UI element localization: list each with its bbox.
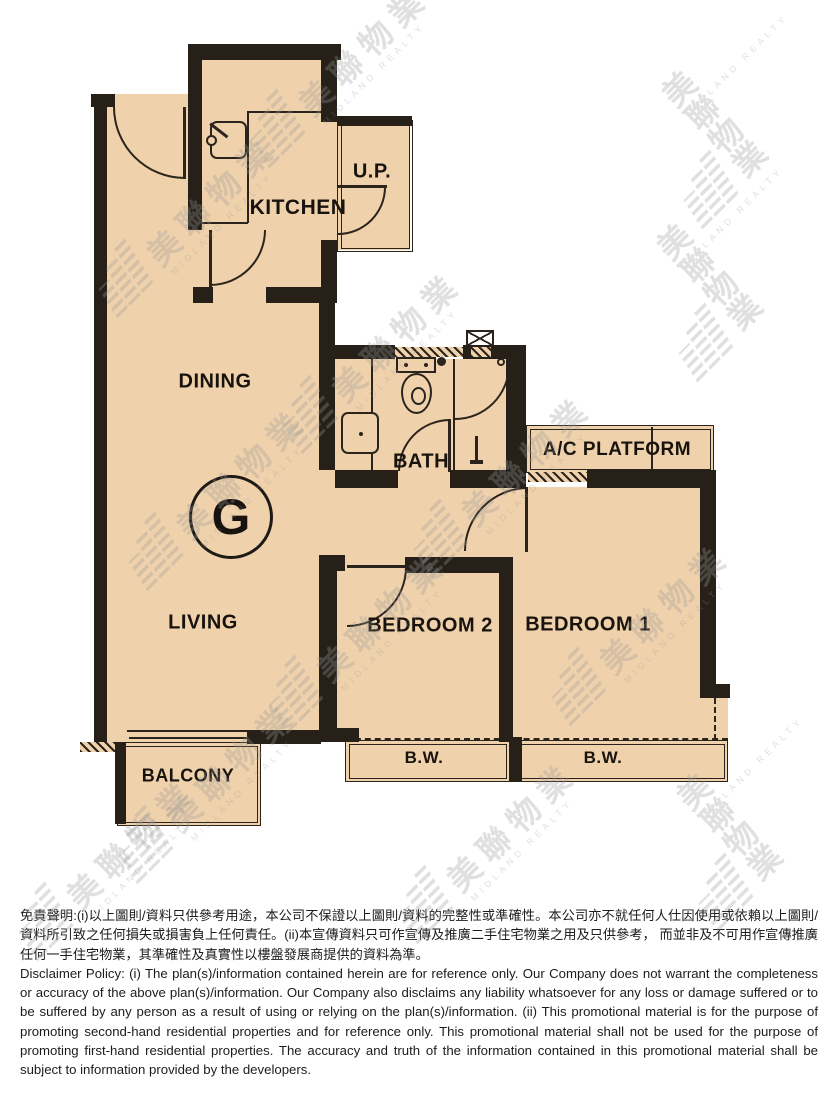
wall-segment <box>193 287 213 303</box>
kitchen-sink-icon <box>210 121 247 159</box>
door-leaf <box>347 565 408 568</box>
wall-segment <box>335 470 398 488</box>
wall-segment <box>700 684 730 698</box>
room-label-living: LIVING <box>168 612 238 635</box>
room-label-ac-platform: A/C PLATFORM <box>543 439 691 461</box>
disclaimer-en: Disclaimer Policy: (i) The plan(s)/infor… <box>20 964 818 1080</box>
room-label-bedroom1: BEDROOM 1 <box>525 614 651 637</box>
wall-segment <box>587 470 700 488</box>
shower-head-icon <box>468 436 484 466</box>
room-label-bw-left: B.W. <box>405 748 444 768</box>
door-leaf <box>525 487 528 552</box>
drain-dot-icon <box>437 357 446 366</box>
floorplan-page: KITCHEN U.P. DINING LIVING BATH A/C PLAT… <box>0 0 837 1093</box>
shower-drain-icon <box>497 358 505 366</box>
window-hatch <box>528 472 587 482</box>
wall-segment <box>193 44 341 60</box>
disclaimer-zh: 免責聲明:(i)以上圖則/資料只供參考用途，本公司不保證以上圖則/資料的完整性或… <box>20 906 818 964</box>
window-hatch <box>80 742 115 752</box>
wall-segment <box>700 470 716 698</box>
window-hatch <box>471 347 491 357</box>
unit-letter: G <box>212 488 251 546</box>
thin-line <box>247 111 321 113</box>
wall-segment <box>506 345 526 487</box>
wall-segment <box>115 742 126 824</box>
room-label-up: U.P. <box>353 161 391 184</box>
wash-basin-icon <box>341 412 379 454</box>
unit-letter-badge: G <box>189 475 273 559</box>
floor-area <box>321 122 337 240</box>
wall-segment <box>319 303 335 470</box>
wall-segment <box>188 44 202 230</box>
door-leaf <box>209 230 212 287</box>
room-label-balcony: BALCONY <box>142 766 235 787</box>
wall-segment <box>499 557 513 742</box>
bay-window-dashed-line <box>714 698 716 740</box>
disclaimer: 免責聲明:(i)以上圖則/資料只供參考用途，本公司不保證以上圖則/資料的完整性或… <box>20 906 818 1079</box>
door-leaf <box>183 107 186 179</box>
wall-segment <box>321 44 337 122</box>
thin-line <box>127 730 249 732</box>
wall-segment <box>266 287 337 303</box>
wall-segment <box>319 555 337 742</box>
wall-segment <box>247 730 321 744</box>
room-label-kitchen: KITCHEN <box>250 196 347 220</box>
door-leaf <box>338 185 387 188</box>
thin-line <box>129 737 249 739</box>
wall-segment <box>335 345 395 359</box>
room-label-dining: DINING <box>179 371 252 394</box>
room-label-bath: BATH <box>393 451 449 474</box>
wall-segment <box>337 116 412 126</box>
wall-segment <box>94 94 107 742</box>
thin-line <box>202 222 248 224</box>
window-hatch <box>395 347 463 357</box>
wall-segment <box>450 470 526 488</box>
floor-area <box>114 94 188 107</box>
toilet-cistern-icon <box>396 357 436 373</box>
wall-segment <box>319 728 359 742</box>
wall-segment <box>405 557 512 573</box>
room-label-bedroom2: BEDROOM 2 <box>367 615 493 638</box>
room-label-bw-right: B.W. <box>584 748 623 768</box>
wall-segment <box>510 737 522 782</box>
